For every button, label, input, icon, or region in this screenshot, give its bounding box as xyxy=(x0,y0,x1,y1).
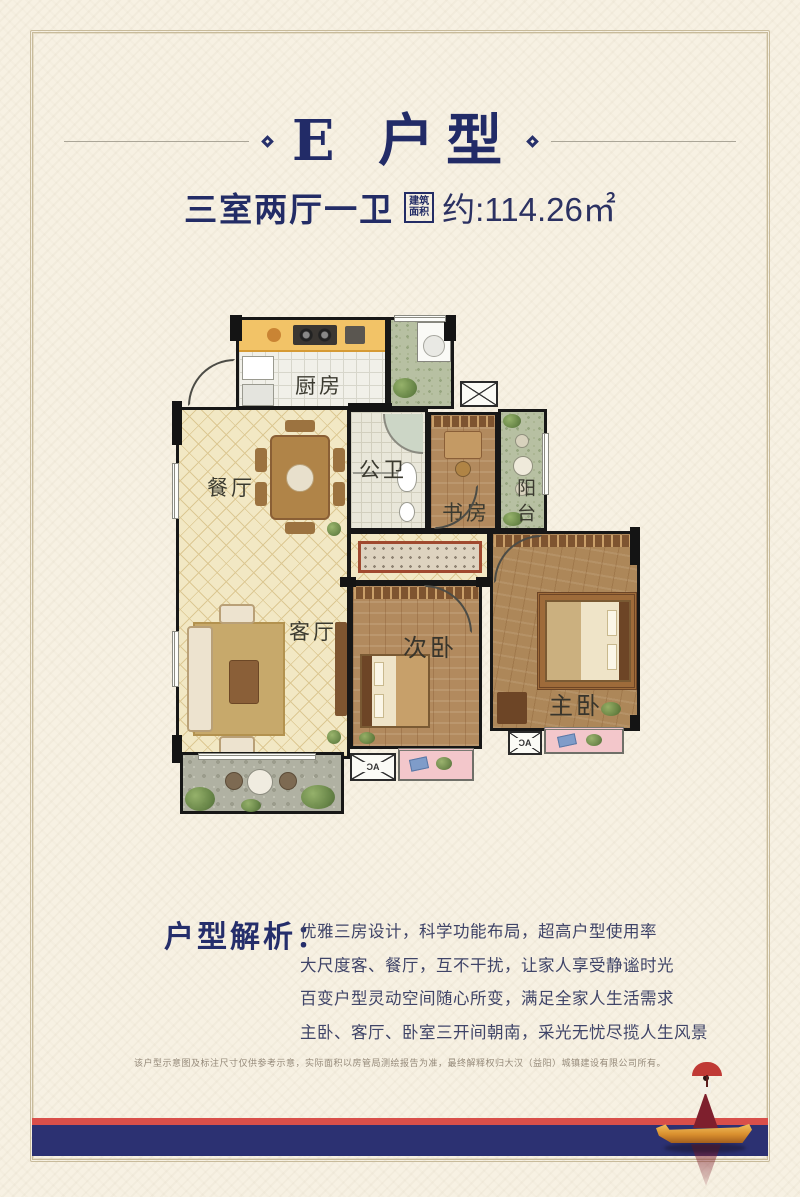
pillow xyxy=(607,610,617,636)
dining-table xyxy=(270,435,330,520)
built-area-badge: 建筑 面积 xyxy=(404,192,434,223)
hallway-rug xyxy=(358,541,482,573)
bookshelf-icon xyxy=(432,416,494,427)
wall-segment xyxy=(476,577,492,587)
room-label-living: 客厅 xyxy=(289,616,337,646)
plant-icon xyxy=(185,787,215,811)
room-kitchen: 厨房 xyxy=(236,317,388,409)
badge-line-1: 建筑 xyxy=(409,196,429,207)
patio-stool-icon xyxy=(225,772,243,790)
patio-stool-icon xyxy=(279,772,297,790)
plant-icon xyxy=(601,702,621,716)
room-count-label: 三室两厅一卫 xyxy=(184,183,394,231)
room-label-master: 主卧 xyxy=(549,686,603,721)
desk-icon xyxy=(444,431,482,459)
coffee-table xyxy=(229,660,259,704)
figure-dress-icon xyxy=(693,1092,718,1128)
pillow xyxy=(374,694,384,718)
armchair xyxy=(219,604,255,624)
range-hood-icon xyxy=(345,326,365,344)
room-label-bathroom: 公卫 xyxy=(359,454,407,484)
flower-balcony xyxy=(398,748,474,781)
plant-icon xyxy=(586,734,602,746)
plant-icon xyxy=(301,785,335,809)
dining-table-top xyxy=(286,464,314,492)
room-label-kitchen: 厨房 xyxy=(295,370,343,400)
balcony-pot-icon xyxy=(515,434,529,448)
room-balcony: 阳台 xyxy=(498,409,547,531)
analysis-line: 大尺度客、餐厅，互不干扰，让家人享受静谧时光 xyxy=(300,950,660,984)
flower-box-icon xyxy=(557,733,577,748)
blanket xyxy=(547,602,581,680)
entry-door-arc xyxy=(188,359,235,406)
headboard xyxy=(619,602,629,680)
analysis-line: 优雅三房设计，科学功能布局，超高户型使用率 xyxy=(300,916,660,950)
wall-segment xyxy=(340,577,356,587)
room-living-dining: 餐厅 客厅 xyxy=(176,407,350,759)
floorplan-poster: { "title": { "text": "E 户型" }, "subtitle… xyxy=(0,0,800,1197)
plant-icon xyxy=(241,799,261,812)
plant-icon xyxy=(327,522,341,536)
dining-chair xyxy=(333,482,345,506)
chair-icon xyxy=(455,461,471,477)
shower-icon xyxy=(383,414,423,454)
umbrella-icon xyxy=(692,1062,722,1076)
washer-drum-icon xyxy=(423,335,445,357)
stove-icon xyxy=(293,325,337,345)
bed-secondary xyxy=(360,654,430,728)
hallway xyxy=(348,531,490,583)
dining-chair xyxy=(333,448,345,472)
balcony-table-icon xyxy=(513,456,533,476)
wall-segment xyxy=(630,527,640,565)
diamond-ornament-icon xyxy=(526,135,539,148)
wall-segment xyxy=(348,403,392,411)
room-label-dining: 餐厅 xyxy=(207,472,255,502)
dining-chair xyxy=(255,482,267,506)
bed-master xyxy=(545,600,631,682)
wall-segment xyxy=(172,401,182,445)
title-ornament-line-right xyxy=(551,141,736,142)
sink-icon xyxy=(399,502,415,522)
plant-icon xyxy=(436,757,452,770)
title-ornament-line-left xyxy=(64,141,249,142)
ac-label: AC xyxy=(352,762,394,772)
badge-line-2: 面积 xyxy=(409,207,429,218)
dining-chair xyxy=(255,448,267,472)
patio-table-icon xyxy=(247,769,273,795)
kitchen-utensil-icon xyxy=(267,328,281,342)
window xyxy=(198,753,316,760)
dining-chair xyxy=(285,522,315,534)
boat-shadow xyxy=(664,1143,746,1153)
plant-icon xyxy=(359,732,375,744)
plant-icon xyxy=(503,414,521,428)
plant-icon xyxy=(393,378,417,398)
plant-icon xyxy=(327,730,341,744)
tv-cabinet xyxy=(335,622,347,716)
ac-platform: AC xyxy=(508,731,542,755)
analysis-text: 优雅三房设计，科学功能布局，超高户型使用率 大尺度客、餐厅，互不干扰，让家人享受… xyxy=(300,916,660,1050)
floorplan: 厨房 公卫 书房 阳台 餐厅 xyxy=(172,315,654,817)
window xyxy=(542,433,549,495)
title-row: E 户型 xyxy=(0,106,800,176)
analysis-line: 主卧、客厅、卧室三开间朝南，采光无忧尽揽人生风景 xyxy=(300,1017,660,1051)
subtitle-row: 三室两厅一卫 建筑 面积 约:114.26㎡ xyxy=(0,183,800,231)
ac-platform: AC xyxy=(350,753,396,781)
dining-chair xyxy=(285,420,315,432)
desk-icon xyxy=(497,692,527,724)
kitchen-sink xyxy=(242,356,274,380)
window xyxy=(172,463,179,519)
garden-patio xyxy=(180,752,344,814)
window xyxy=(172,631,179,687)
pillow xyxy=(607,644,617,670)
flower-balcony xyxy=(544,727,624,754)
flower-box-icon xyxy=(409,756,429,771)
room-label-balcony: 阳台 xyxy=(511,478,538,528)
boat-illustration xyxy=(648,1054,760,1160)
sofa xyxy=(187,626,213,732)
wall-segment xyxy=(172,735,182,763)
room-label-bedroom2: 次卧 xyxy=(403,628,457,663)
analysis-line: 百变户型灵动空间随心所变，满足全家人生活需求 xyxy=(300,983,660,1017)
diamond-ornament-icon xyxy=(261,135,274,148)
blanket xyxy=(396,656,428,726)
shaft-box xyxy=(460,381,498,407)
room-bathroom: 公卫 xyxy=(348,409,428,531)
wardrobe xyxy=(354,587,478,599)
wall-segment xyxy=(630,715,640,731)
window xyxy=(394,315,446,322)
area-value: 约:114.26㎡ xyxy=(442,183,616,231)
pillow xyxy=(374,662,384,686)
ac-label: AC xyxy=(510,738,540,748)
kitchen-counter xyxy=(239,320,385,352)
wall-segment xyxy=(230,315,242,341)
fridge-icon xyxy=(242,384,274,406)
headboard xyxy=(362,656,372,726)
page-title: E 户型 xyxy=(286,113,514,169)
